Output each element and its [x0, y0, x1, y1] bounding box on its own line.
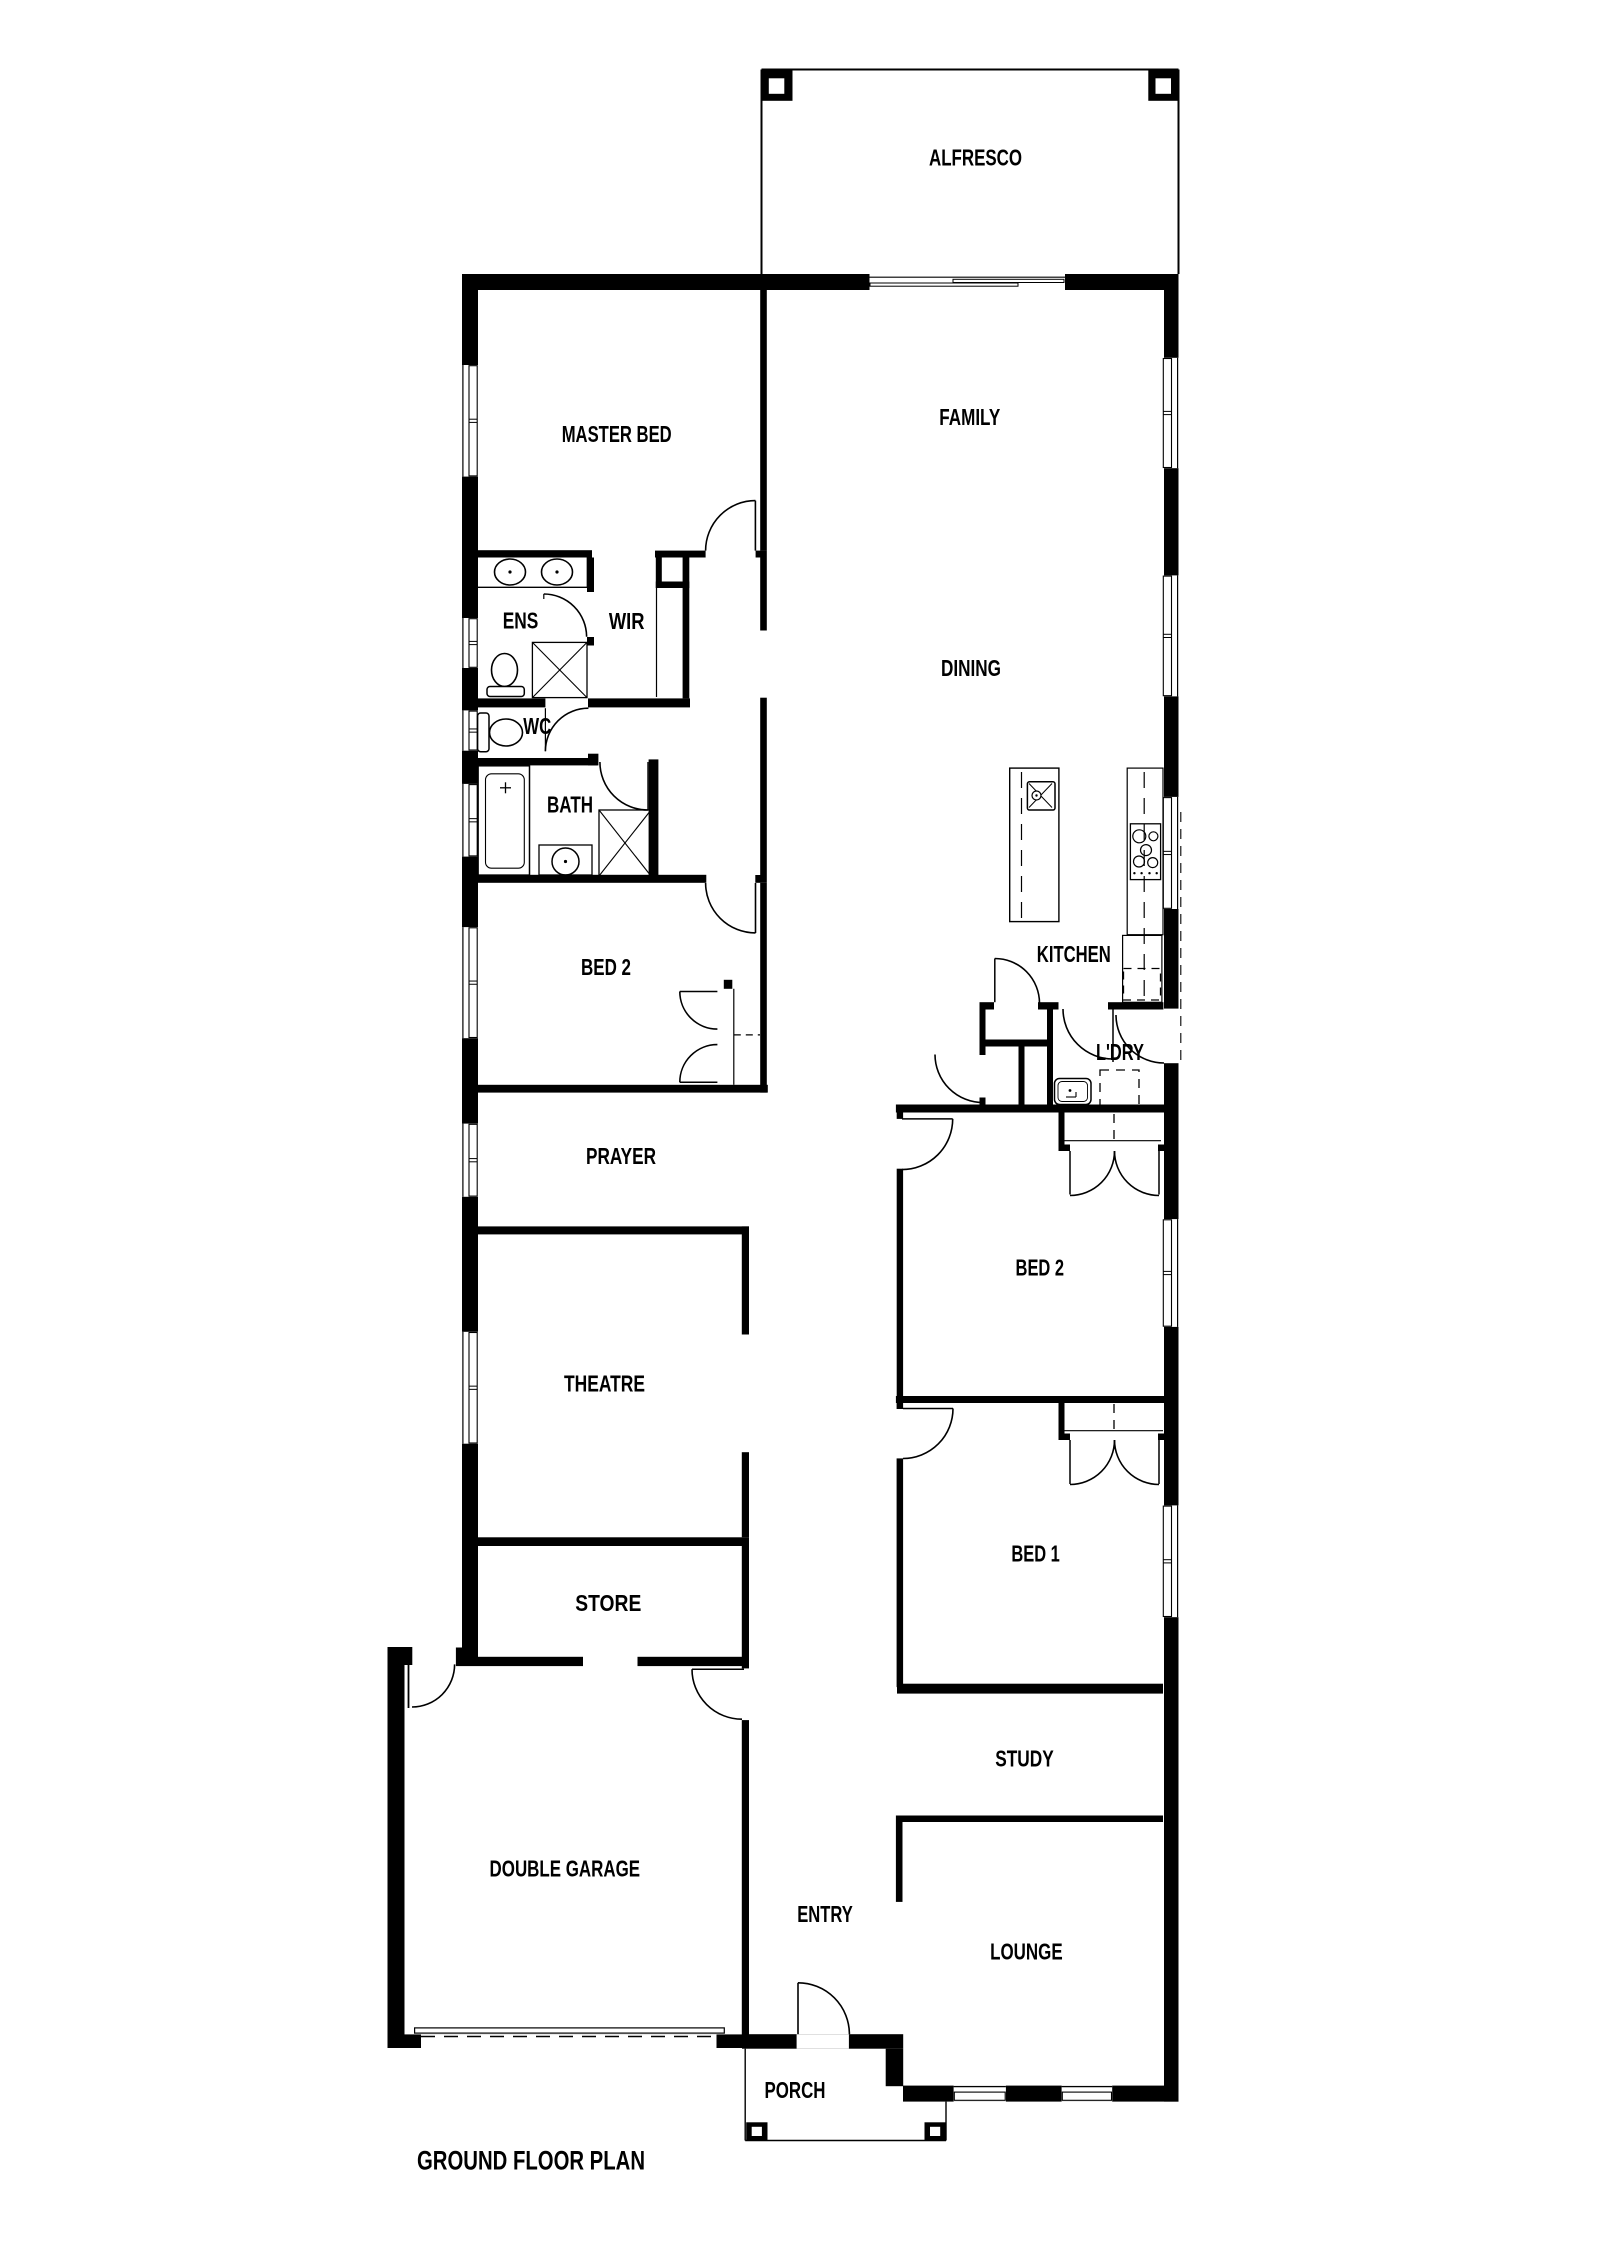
- svg-text:BATH: BATH: [547, 792, 593, 818]
- svg-text:WIR: WIR: [609, 608, 645, 634]
- svg-text:FAMILY: FAMILY: [939, 404, 1000, 430]
- svg-text:PRAYER: PRAYER: [586, 1143, 656, 1169]
- svg-text:THEATRE: THEATRE: [564, 1371, 645, 1397]
- svg-text:LOUNGE: LOUNGE: [990, 1938, 1063, 1964]
- svg-text:DOUBLE GARAGE: DOUBLE GARAGE: [490, 1856, 641, 1882]
- svg-text:KITCHEN: KITCHEN: [1037, 941, 1111, 967]
- svg-text:DINING: DINING: [941, 655, 1001, 681]
- svg-text:BED 2: BED 2: [581, 954, 631, 980]
- svg-text:L'DRY: L'DRY: [1096, 1039, 1144, 1065]
- svg-text:ENS: ENS: [503, 608, 539, 634]
- svg-text:STUDY: STUDY: [995, 1745, 1054, 1771]
- svg-text:MASTER BED: MASTER BED: [562, 421, 672, 447]
- svg-text:PORCH: PORCH: [765, 2077, 826, 2103]
- svg-text:ALFRESCO: ALFRESCO: [929, 145, 1022, 171]
- svg-text:WC: WC: [523, 713, 551, 739]
- svg-text:STORE: STORE: [575, 1590, 641, 1616]
- svg-text:ENTRY: ENTRY: [797, 1901, 853, 1927]
- svg-text:BED 2: BED 2: [1016, 1254, 1065, 1280]
- svg-text:BED 1: BED 1: [1011, 1541, 1060, 1567]
- svg-text:GROUND FLOOR PLAN: GROUND FLOOR PLAN: [417, 2145, 645, 2175]
